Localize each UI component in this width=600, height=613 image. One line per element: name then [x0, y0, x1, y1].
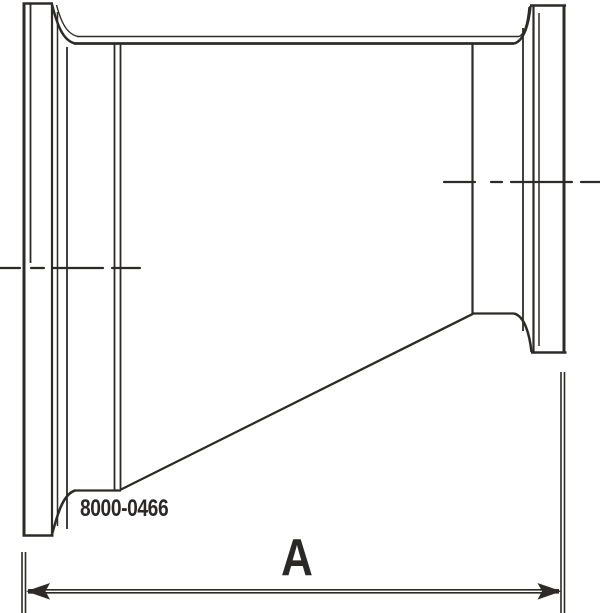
- right-ferrule-bottom-fillet-curve: [514, 314, 532, 353]
- dimension-arrow-left-icon: [26, 583, 50, 600]
- body-cone: [74, 7, 529, 491]
- left-ferrule-bottom-fillet-curve: [52, 491, 75, 535]
- body-eccentric-slope-line: [120, 314, 473, 490]
- dimension-a-label: A: [281, 532, 313, 584]
- left-ferrule-top-fillet-inner-curve: [57, 5, 79, 37]
- dimension-arrow-right-icon: [538, 583, 562, 600]
- part-number-label: 8000-0466: [80, 497, 168, 521]
- drawing-canvas: 8000-0466 A: [0, 0, 600, 613]
- centerlines: [0, 182, 600, 268]
- right-ferrule: [514, 6, 567, 353]
- left-ferrule: [23, 3, 79, 536]
